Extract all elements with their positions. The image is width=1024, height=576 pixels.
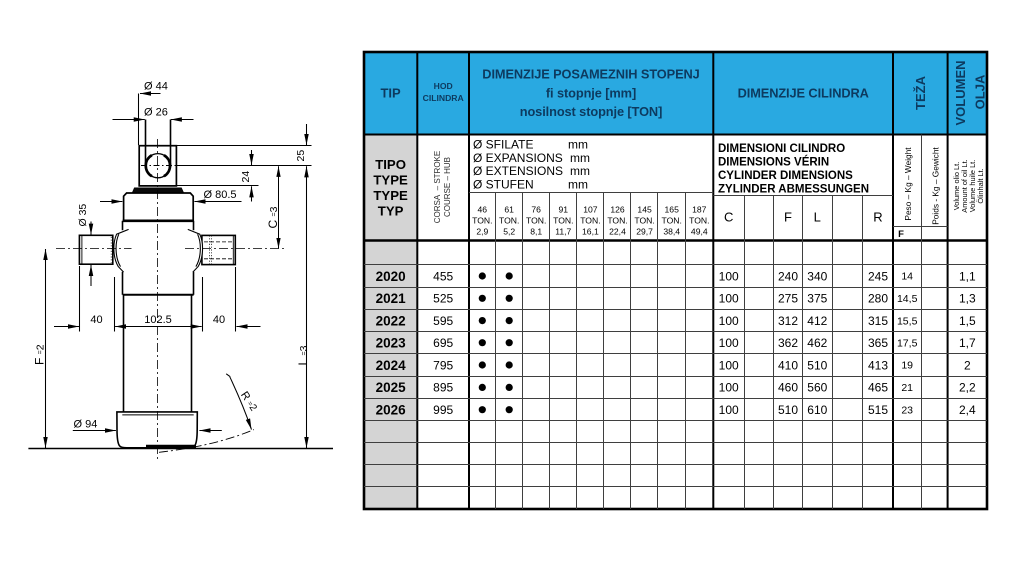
svg-text:C =3: C =3 <box>266 206 280 228</box>
svg-text:340: 340 <box>807 269 827 283</box>
svg-text:460: 460 <box>778 381 798 395</box>
svg-text:1,7: 1,7 <box>959 336 976 350</box>
svg-text:525: 525 <box>433 292 453 306</box>
svg-text:L =3: L =3 <box>296 345 310 365</box>
svg-text:465: 465 <box>868 381 888 395</box>
svg-text:DIMENZIJE CILINDRA: DIMENZIJE CILINDRA <box>738 86 869 101</box>
svg-text:100: 100 <box>719 381 739 395</box>
svg-text:455: 455 <box>433 269 453 283</box>
svg-text:280: 280 <box>868 292 888 306</box>
svg-text:TON.: TON. <box>607 216 627 226</box>
svg-text:560: 560 <box>807 381 827 395</box>
svg-text:TON.: TON. <box>499 216 519 226</box>
svg-text:2,2: 2,2 <box>959 381 976 395</box>
svg-text:CILINDRA: CILINDRA <box>423 93 464 103</box>
svg-text:29,7: 29,7 <box>636 227 653 237</box>
svg-text:995: 995 <box>433 403 453 417</box>
svg-text:C: C <box>724 210 733 225</box>
svg-text:ZYLINDER ABMESSUNGEN: ZYLINDER ABMESSUNGEN <box>718 184 869 196</box>
svg-text:100: 100 <box>719 314 739 328</box>
svg-text:22,4: 22,4 <box>609 227 626 237</box>
svg-text:100: 100 <box>719 403 739 417</box>
svg-text:1,1: 1,1 <box>959 269 976 283</box>
svg-text:CORSA – STROKE: CORSA – STROKE <box>433 151 442 223</box>
svg-text:510: 510 <box>807 358 827 372</box>
svg-text:TON.: TON. <box>634 216 654 226</box>
svg-text:1,3: 1,3 <box>959 292 976 306</box>
svg-text:91: 91 <box>559 205 569 215</box>
svg-text:F: F <box>784 210 792 225</box>
svg-text:100: 100 <box>719 269 739 283</box>
svg-text:695: 695 <box>433 336 453 350</box>
svg-text:TIPO: TIPO <box>375 157 406 172</box>
svg-text:412: 412 <box>807 314 827 328</box>
svg-text:mm: mm <box>568 177 588 191</box>
svg-text:VOLUMEN: VOLUMEN <box>953 61 968 126</box>
svg-text:TEŽA: TEŽA <box>913 75 928 110</box>
svg-text:23: 23 <box>901 404 913 416</box>
svg-text:2,9: 2,9 <box>476 227 488 237</box>
svg-text:Ø 35: Ø 35 <box>77 204 89 227</box>
svg-text:14,5: 14,5 <box>897 293 918 305</box>
svg-text:126: 126 <box>610 205 625 215</box>
svg-text:Ölinhalt Lt.: Ölinhalt Lt. <box>976 168 985 203</box>
svg-text:mm: mm <box>570 164 590 178</box>
svg-text:Poids - Kg – Gewicht: Poids - Kg – Gewicht <box>931 147 941 225</box>
svg-text:100: 100 <box>719 336 739 350</box>
svg-text:fi stopnje [mm]: fi stopnje [mm] <box>546 86 636 101</box>
svg-text:275: 275 <box>778 292 798 306</box>
svg-text:OLJA: OLJA <box>973 74 988 109</box>
svg-text:R: R <box>873 210 882 225</box>
svg-text:2: 2 <box>964 358 971 372</box>
svg-text:24: 24 <box>240 171 252 183</box>
svg-text:Ø 94: Ø 94 <box>74 419 98 431</box>
svg-text:17,5: 17,5 <box>897 337 918 349</box>
svg-text:365: 365 <box>868 336 888 350</box>
svg-text:15,5: 15,5 <box>897 315 918 327</box>
svg-text:25: 25 <box>295 150 307 162</box>
svg-text:462: 462 <box>807 336 827 350</box>
svg-text:TYPE: TYPE <box>373 188 408 203</box>
svg-text:2022: 2022 <box>376 313 406 328</box>
svg-text:F: F <box>898 229 904 240</box>
svg-text:Ø STUFEN: Ø STUFEN <box>473 177 534 191</box>
svg-text:2025: 2025 <box>376 380 407 395</box>
svg-text:DIMENZIJE POSAMEZNIH STOPENJ: DIMENZIJE POSAMEZNIH STOPENJ <box>482 67 699 82</box>
svg-text:76: 76 <box>531 205 541 215</box>
svg-text:145: 145 <box>637 205 652 215</box>
svg-text:2023: 2023 <box>376 336 407 351</box>
svg-text:Ø 80.5: Ø 80.5 <box>204 189 237 201</box>
svg-text:413: 413 <box>868 358 888 372</box>
svg-text:2021: 2021 <box>376 291 407 306</box>
svg-text:Peso – Kg – Weight: Peso – Kg – Weight <box>903 147 913 221</box>
svg-text:895: 895 <box>433 381 453 395</box>
svg-text:100: 100 <box>719 358 739 372</box>
svg-text:COURSE – HUB: COURSE – HUB <box>443 157 452 217</box>
svg-text:61: 61 <box>504 205 514 215</box>
svg-text:187: 187 <box>692 205 707 215</box>
svg-text:TON.: TON. <box>580 216 600 226</box>
svg-text:8,1: 8,1 <box>530 227 542 237</box>
svg-text:165: 165 <box>665 205 680 215</box>
svg-text:595: 595 <box>433 314 453 328</box>
svg-text:DIMENSIONI CILINDRO: DIMENSIONI CILINDRO <box>718 143 845 155</box>
svg-text:240: 240 <box>778 269 798 283</box>
svg-text:49,4: 49,4 <box>691 227 708 237</box>
svg-text:14: 14 <box>901 271 913 283</box>
svg-text:TON.: TON. <box>689 216 709 226</box>
svg-text:DIMENSIONS VÉRIN: DIMENSIONS VÉRIN <box>718 156 829 169</box>
svg-text:21: 21 <box>901 382 913 394</box>
svg-text:362: 362 <box>778 336 798 350</box>
svg-text:nosilnost stopnje [TON]: nosilnost stopnje [TON] <box>520 104 663 119</box>
svg-text:2026: 2026 <box>376 403 407 418</box>
svg-text:TON.: TON. <box>662 216 682 226</box>
svg-text:38,4: 38,4 <box>663 227 680 237</box>
svg-text:410: 410 <box>778 358 798 372</box>
svg-text:TON.: TON. <box>472 216 492 226</box>
svg-text:2,4: 2,4 <box>959 403 976 417</box>
svg-text:TON.: TON. <box>553 216 573 226</box>
svg-text:Ø EXPANSIONS: Ø EXPANSIONS <box>473 151 563 165</box>
svg-text:Ø 26: Ø 26 <box>144 107 168 119</box>
svg-text:5,2: 5,2 <box>503 227 515 237</box>
svg-text:515: 515 <box>868 403 888 417</box>
svg-text:Ø SFILATE: Ø SFILATE <box>473 138 533 152</box>
svg-text:19: 19 <box>901 360 913 372</box>
svg-text:315: 315 <box>868 314 888 328</box>
svg-text:375: 375 <box>807 292 827 306</box>
svg-text:2024: 2024 <box>376 358 407 373</box>
svg-text:11,7: 11,7 <box>555 227 571 237</box>
svg-text:610: 610 <box>807 403 827 417</box>
svg-text:312: 312 <box>778 314 798 328</box>
svg-text:Ø EXTENSIONS: Ø EXTENSIONS <box>473 164 563 178</box>
svg-text:107: 107 <box>583 205 598 215</box>
svg-text:1,5: 1,5 <box>959 314 976 328</box>
svg-text:CYLINDER DIMENSIONS: CYLINDER DIMENSIONS <box>718 170 853 182</box>
svg-text:mm: mm <box>568 138 588 152</box>
svg-text:TYPE: TYPE <box>373 173 408 188</box>
svg-text:40: 40 <box>213 314 225 326</box>
svg-text:102.5: 102.5 <box>144 314 172 326</box>
svg-text:795: 795 <box>433 358 453 372</box>
svg-text:510: 510 <box>778 403 798 417</box>
svg-text:HOD: HOD <box>434 81 453 91</box>
svg-text:L: L <box>814 210 821 225</box>
svg-text:TYP: TYP <box>378 204 404 219</box>
svg-text:TON.: TON. <box>526 216 546 226</box>
svg-text:40: 40 <box>90 314 102 326</box>
svg-text:F =2: F =2 <box>33 344 47 365</box>
svg-text:TIP: TIP <box>380 86 401 101</box>
svg-text:100: 100 <box>719 292 739 306</box>
svg-text:245: 245 <box>868 269 888 283</box>
svg-text:Ø 44: Ø 44 <box>144 81 168 93</box>
svg-text:46: 46 <box>478 205 488 215</box>
svg-text:2020: 2020 <box>376 269 406 284</box>
svg-text:mm: mm <box>570 151 590 165</box>
svg-text:16,1: 16,1 <box>582 227 599 237</box>
